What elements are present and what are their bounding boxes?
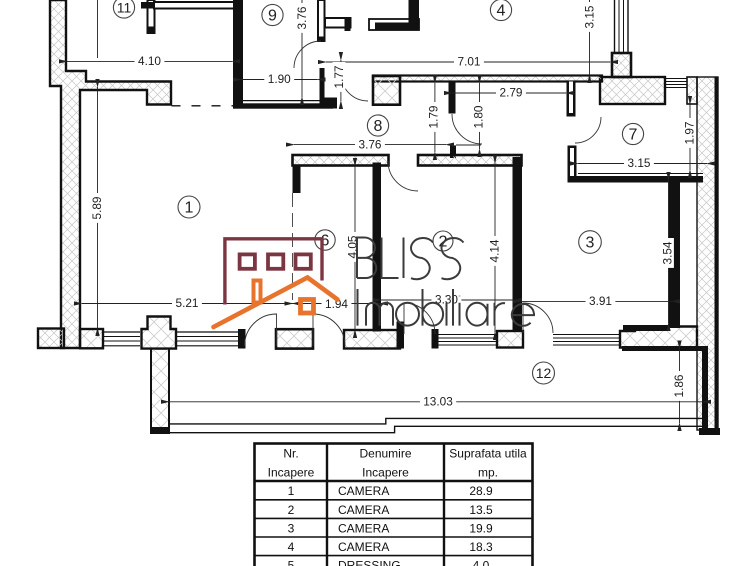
svg-text:9: 9 <box>268 8 277 25</box>
svg-text:18.3: 18.3 <box>469 540 493 554</box>
svg-text:DRESSING: DRESSING <box>338 559 401 566</box>
svg-text:4: 4 <box>497 3 506 20</box>
svg-text:13.03: 13.03 <box>423 395 453 409</box>
svg-text:Nr.: Nr. <box>283 447 298 461</box>
svg-text:4.10: 4.10 <box>138 54 161 68</box>
svg-text:28.9: 28.9 <box>469 484 493 498</box>
svg-text:3.15: 3.15 <box>583 5 597 28</box>
svg-text:5.89: 5.89 <box>90 197 104 220</box>
svg-text:12: 12 <box>536 365 552 381</box>
svg-text:3.54: 3.54 <box>661 241 675 264</box>
svg-text:4.0: 4.0 <box>473 559 490 566</box>
svg-text:1.80: 1.80 <box>472 105 486 128</box>
svg-text:5: 5 <box>288 559 295 566</box>
svg-text:7: 7 <box>629 127 638 144</box>
svg-text:1.79: 1.79 <box>427 106 441 129</box>
svg-text:mp.: mp. <box>478 466 498 480</box>
svg-text:3.76: 3.76 <box>359 137 382 151</box>
svg-text:1.97: 1.97 <box>683 122 697 145</box>
svg-text:13.5: 13.5 <box>469 503 493 517</box>
svg-text:3.76: 3.76 <box>295 6 309 29</box>
svg-text:4: 4 <box>288 540 295 554</box>
svg-text:1: 1 <box>185 200 194 217</box>
svg-text:1.90: 1.90 <box>268 72 291 86</box>
svg-text:Incapere: Incapere <box>362 466 409 480</box>
svg-text:2: 2 <box>288 503 295 517</box>
svg-text:CAMERA: CAMERA <box>338 540 389 554</box>
svg-text:CAMERA: CAMERA <box>338 503 389 517</box>
svg-text:8: 8 <box>374 118 383 135</box>
svg-text:2.79: 2.79 <box>500 86 523 100</box>
svg-text:11: 11 <box>117 0 132 16</box>
svg-text:3: 3 <box>586 235 595 252</box>
svg-text:1.86: 1.86 <box>672 374 686 397</box>
svg-text:Suprafata utila: Suprafata utila <box>449 447 527 461</box>
svg-text:Incapere: Incapere <box>268 466 315 480</box>
svg-text:7.01: 7.01 <box>458 55 481 69</box>
svg-text:19.9: 19.9 <box>469 521 493 535</box>
svg-text:CAMERA: CAMERA <box>338 521 389 535</box>
svg-text:3.91: 3.91 <box>589 294 612 308</box>
svg-text:Denumire: Denumire <box>359 447 411 461</box>
svg-text:1.77: 1.77 <box>332 66 346 89</box>
svg-text:3: 3 <box>288 521 295 535</box>
svg-text:5.21: 5.21 <box>176 296 199 310</box>
svg-text:3.15: 3.15 <box>628 156 651 170</box>
svg-text:1: 1 <box>288 484 295 498</box>
svg-text:CAMERA: CAMERA <box>338 484 389 498</box>
svg-text:4.14: 4.14 <box>488 239 502 262</box>
